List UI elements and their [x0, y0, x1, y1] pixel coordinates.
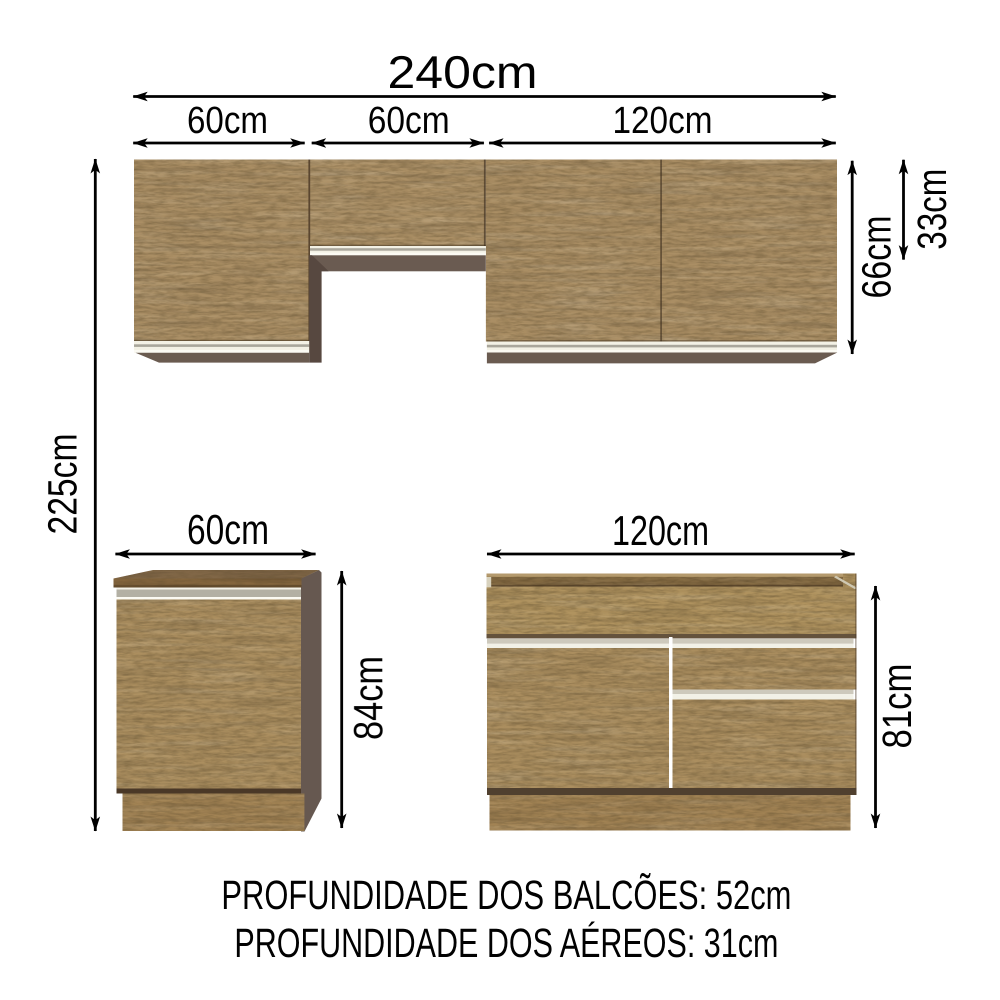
svg-text:60cm: 60cm [187, 506, 269, 553]
svg-text:60cm: 60cm [187, 100, 268, 142]
svg-text:60cm: 60cm [368, 100, 450, 142]
svg-text:33cm: 33cm [909, 169, 955, 250]
svg-text:66cm: 66cm [853, 216, 899, 299]
svg-text:120cm: 120cm [613, 100, 713, 142]
svg-text:225cm: 225cm [40, 434, 86, 535]
svg-text:PROFUNDIDADE DOS AÉREOS: 31cm: PROFUNDIDADE DOS AÉREOS: 31cm [234, 920, 778, 966]
svg-text:240cm: 240cm [388, 46, 538, 98]
svg-text:81cm: 81cm [874, 664, 920, 749]
svg-text:120cm: 120cm [612, 507, 709, 554]
svg-text:PROFUNDIDADE DOS BALCÕES: 52cm: PROFUNDIDADE DOS BALCÕES: 52cm [221, 872, 791, 918]
svg-text:84cm: 84cm [345, 656, 391, 740]
